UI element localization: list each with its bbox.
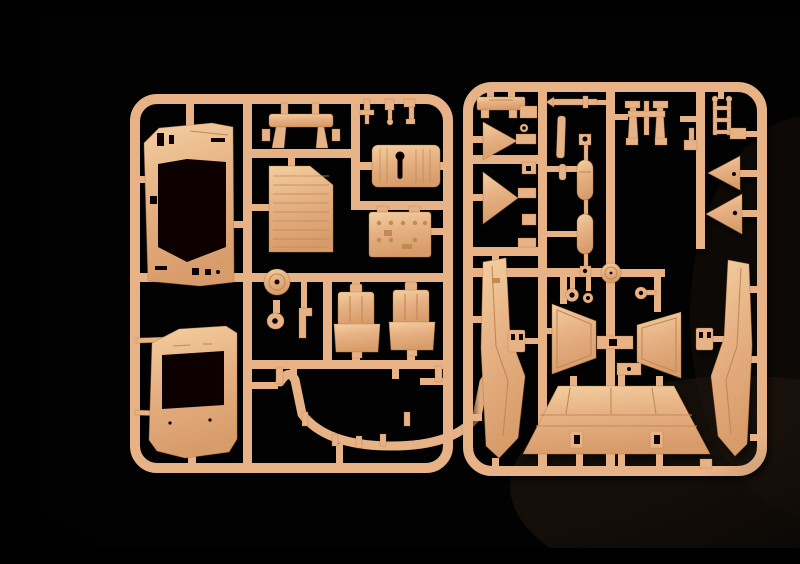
vignette-overlay xyxy=(40,16,800,548)
sprue-photo-canvas xyxy=(40,16,800,548)
photo-model-kit-sprues xyxy=(40,16,800,548)
